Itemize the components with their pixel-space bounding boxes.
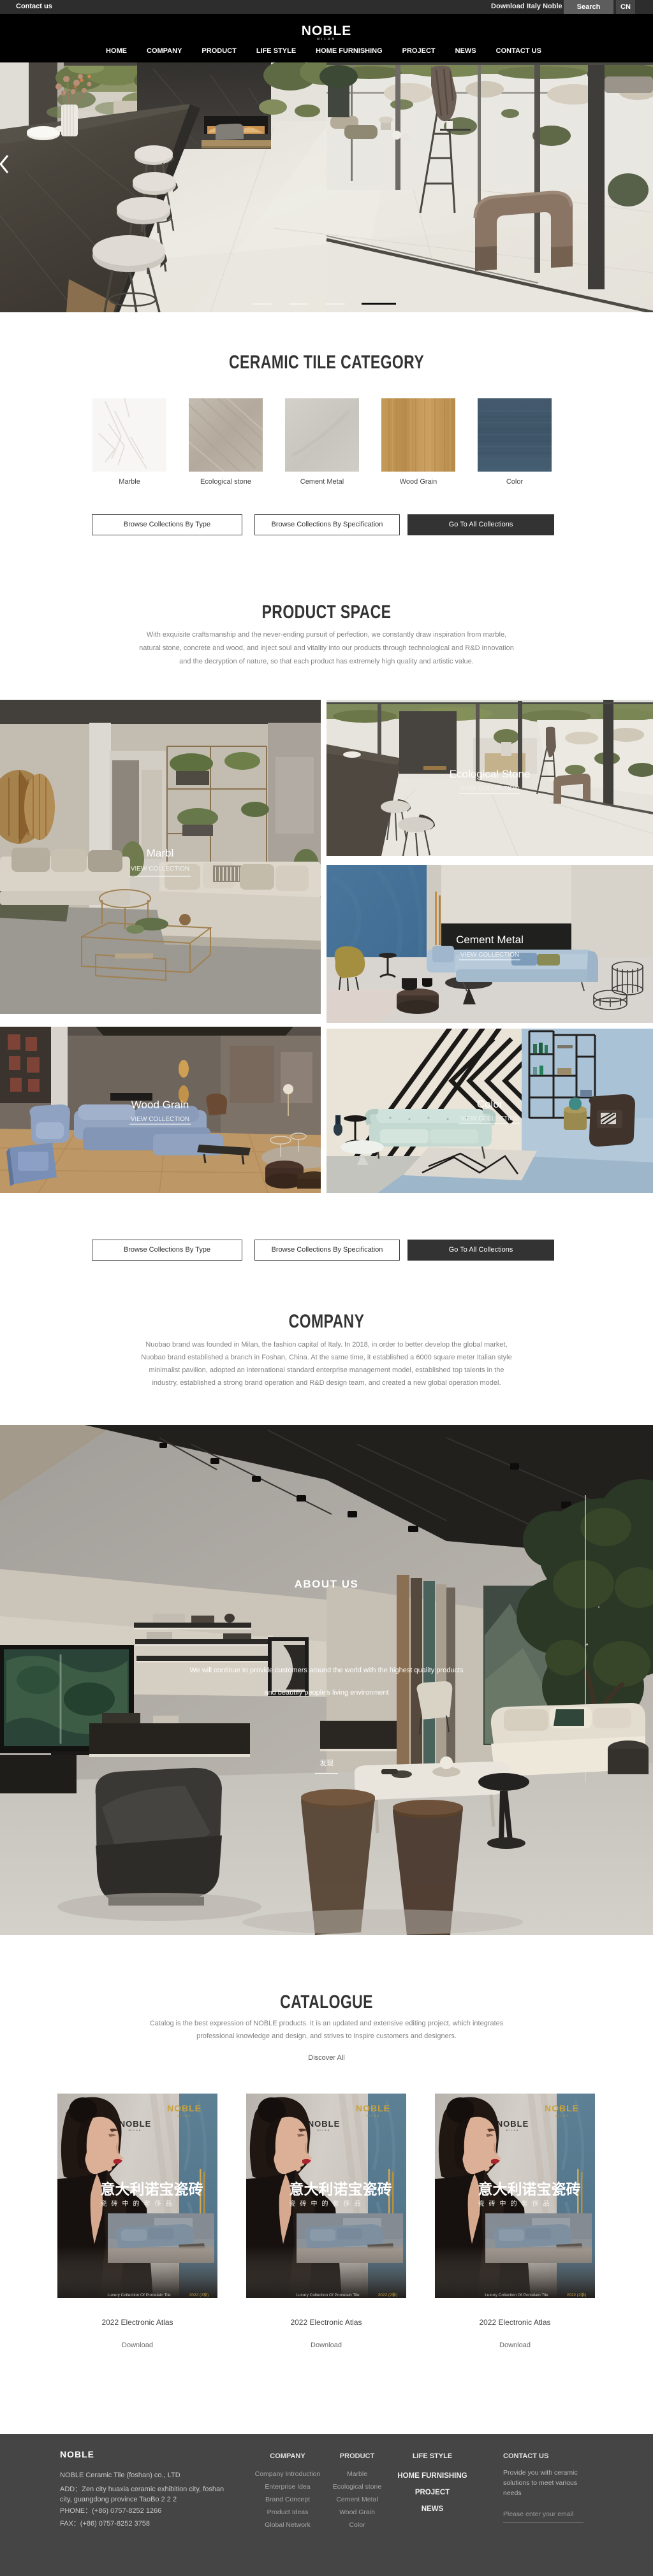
svg-text:Color: Color (477, 1098, 503, 1110)
svg-text:Marbl: Marbl (147, 847, 174, 859)
svg-text:Ecological Stone: Ecological Stone (450, 768, 531, 780)
svg-text:VIEW COLLECTION: VIEW COLLECTION (131, 1116, 189, 1123)
svg-text:Cement Metal: Cement Metal (456, 934, 524, 946)
svg-text:VIEW COLLECTION: VIEW COLLECTION (131, 865, 189, 872)
svg-text:Wood Grain: Wood Grain (131, 1099, 189, 1111)
svg-text:VIEW COLLECTION: VIEW COLLECTION (460, 952, 519, 959)
svg-text:VIEW COLLECTION: VIEW COLLECTION (460, 785, 519, 792)
svg-text:VIEW COLLECTION: VIEW COLLECTION (460, 1115, 519, 1122)
